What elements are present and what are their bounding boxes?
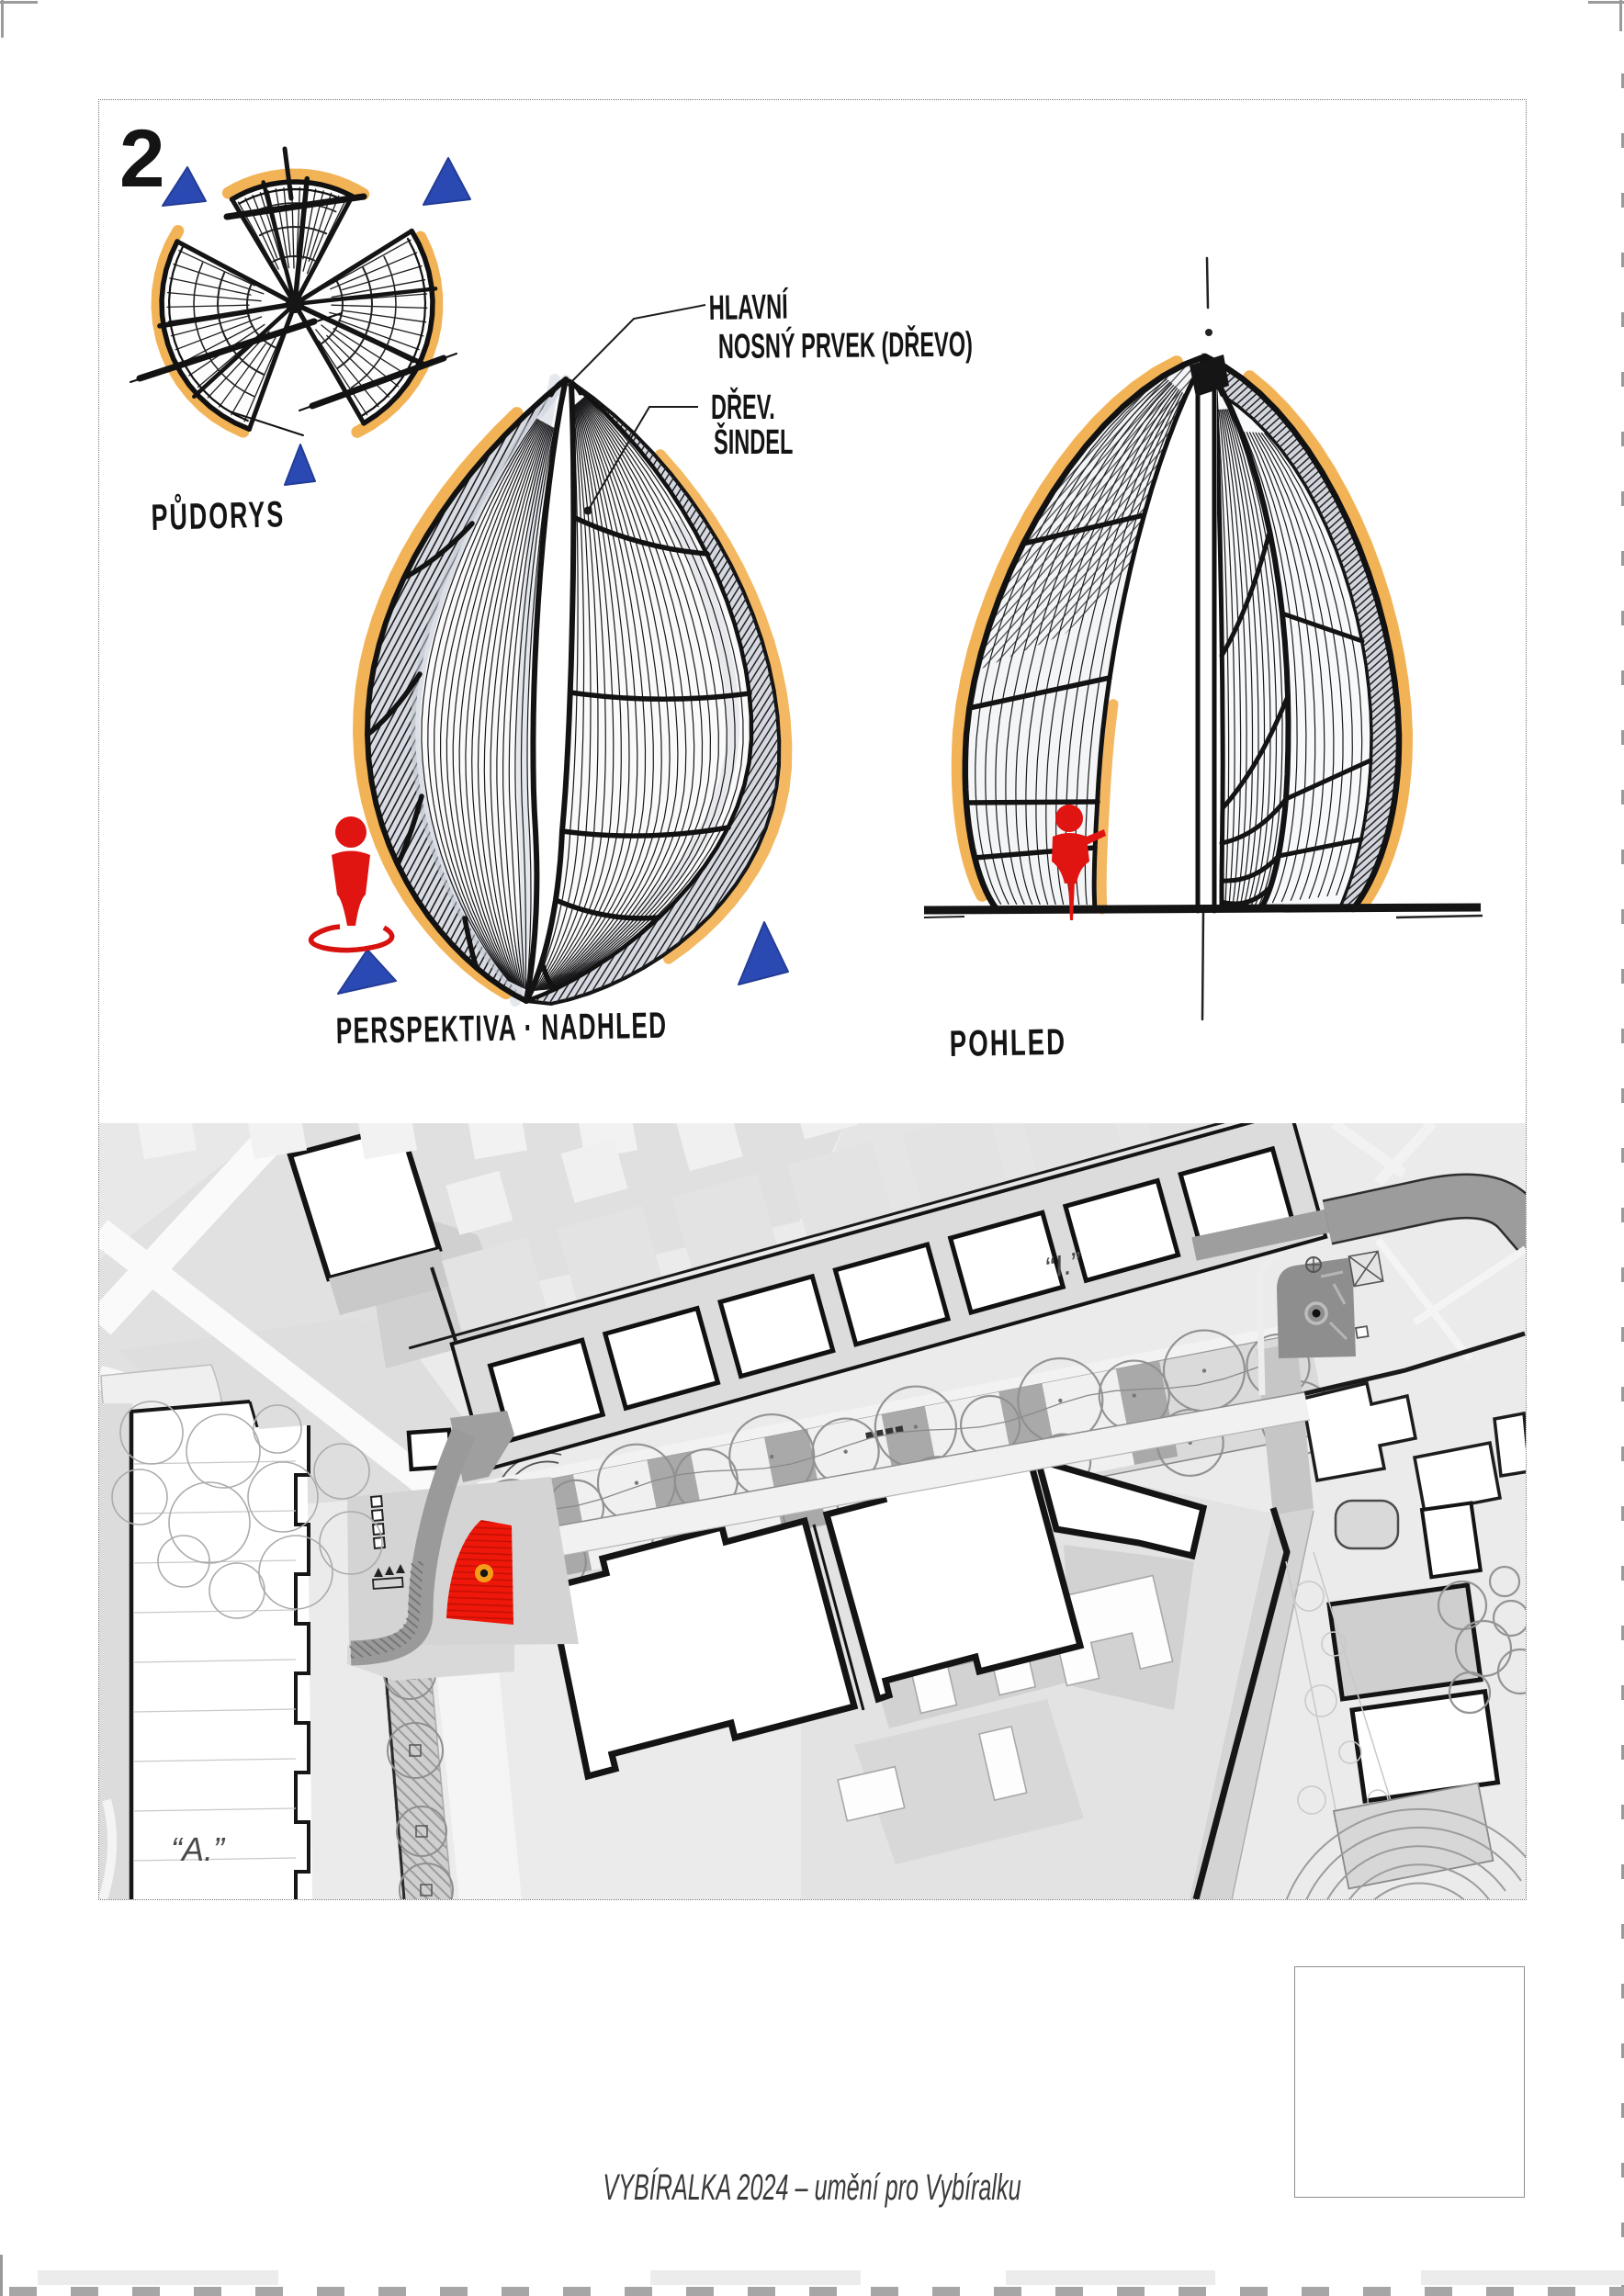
svg-text:DŘEV.: DŘEV. <box>711 387 775 426</box>
svg-text:POHLED: POHLED <box>949 1022 1066 1064</box>
svg-text:“A.”: “A.” <box>171 1830 226 1868</box>
svg-text:NOSNÝ PRVEK (DŘEVO): NOSNÝ PRVEK (DŘEVO) <box>718 324 973 366</box>
svg-text:ŠINDEL: ŠINDEL <box>714 422 793 461</box>
svg-text:PŮDORYS: PŮDORYS <box>151 490 286 538</box>
svg-text:PERSPEKTIVA · NADHLED: PERSPEKTIVA · NADHLED <box>335 1005 667 1052</box>
svg-text:“I.”: “I.” <box>1042 1245 1085 1285</box>
svg-text:HLAVNÍ: HLAVNÍ <box>708 287 789 328</box>
